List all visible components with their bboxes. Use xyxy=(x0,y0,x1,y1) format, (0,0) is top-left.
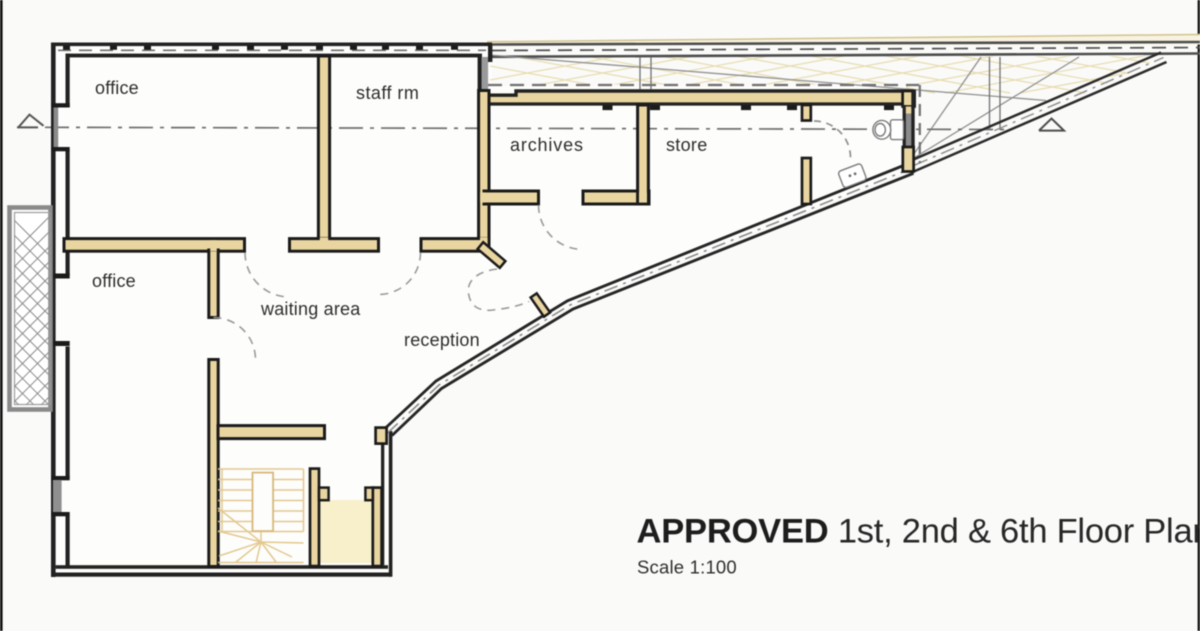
svg-text:store: store xyxy=(666,135,708,155)
svg-text:office: office xyxy=(95,78,139,98)
svg-text:reception: reception xyxy=(404,330,480,350)
svg-text:waiting area: waiting area xyxy=(260,299,361,319)
svg-text:APPROVED 1st, 2nd & 6th Floor: APPROVED 1st, 2nd & 6th Floor Plan xyxy=(637,513,1200,551)
svg-text:staff rm: staff rm xyxy=(356,83,419,103)
svg-text:archives: archives xyxy=(510,135,584,155)
svg-text:Scale 1:100: Scale 1:100 xyxy=(637,557,737,578)
svg-text:office: office xyxy=(92,271,136,291)
